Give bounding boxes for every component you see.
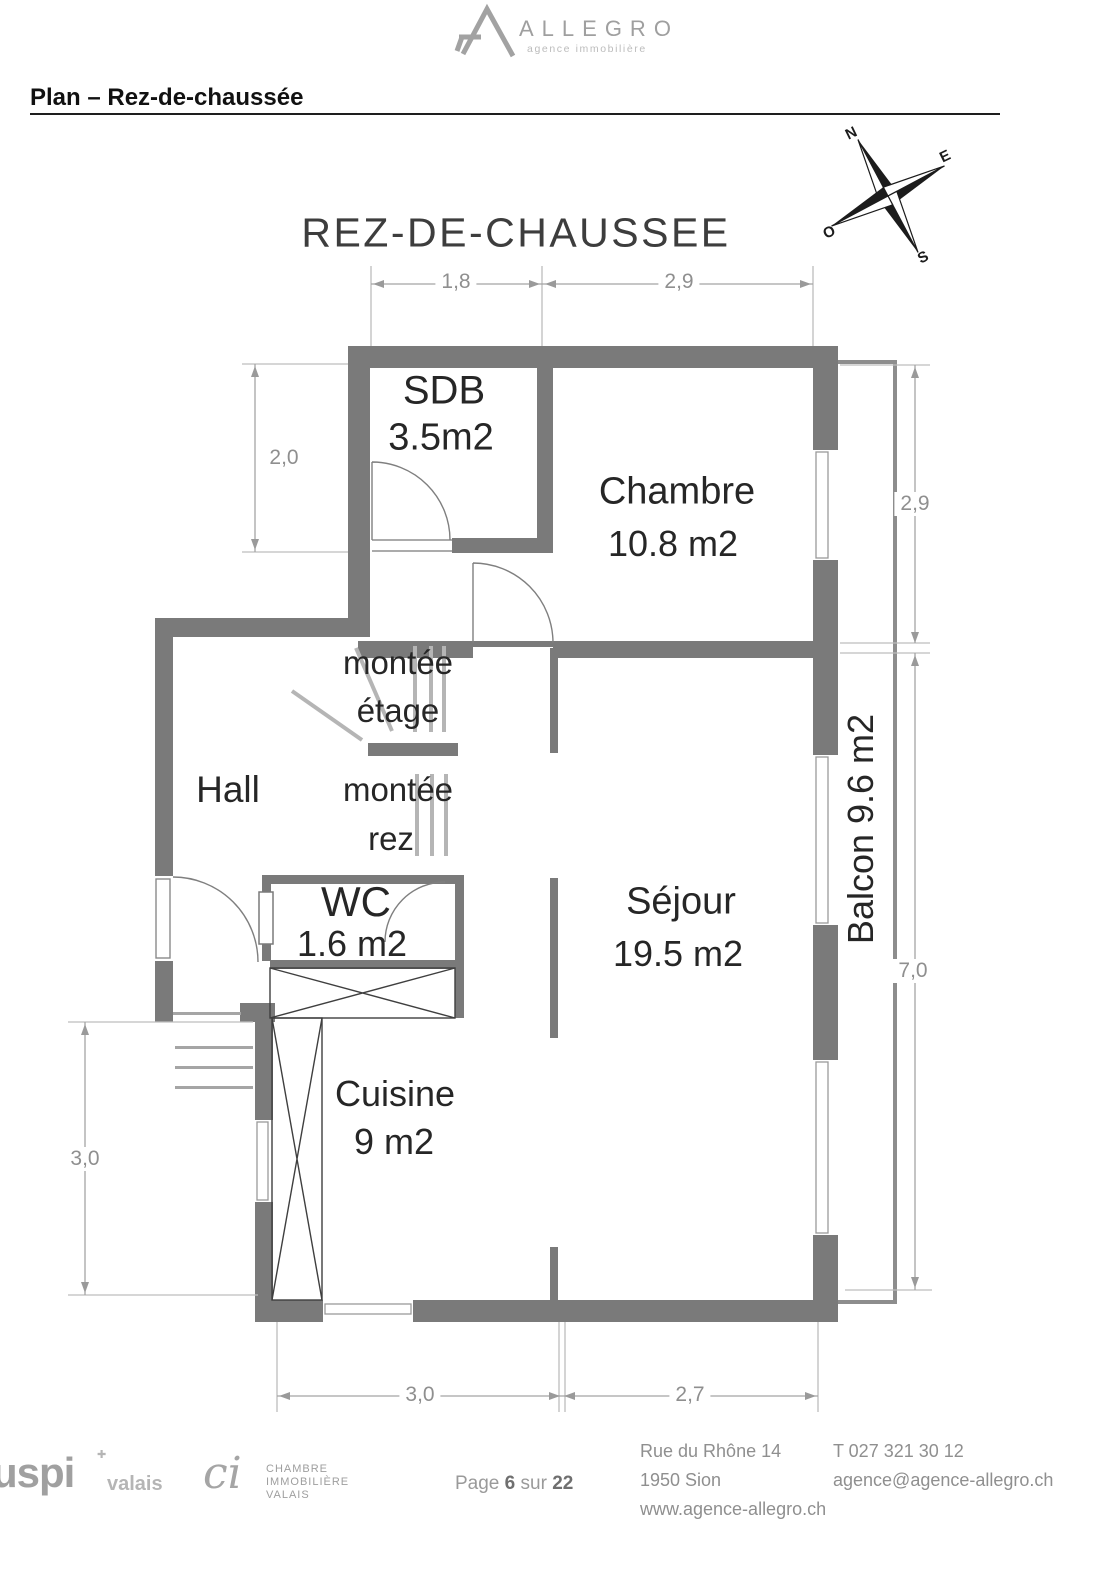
stair-landing-bar <box>368 743 458 756</box>
wall-sdb-divider <box>537 346 553 553</box>
room-balcon-label: Balcon 9.6 m2 <box>840 714 882 944</box>
window-cuisine-south <box>323 1300 413 1322</box>
dimension-lines <box>85 284 915 1396</box>
address-city: 1950 Sion <box>640 1466 826 1495</box>
page-label: Page <box>455 1473 499 1494</box>
page-total: 22 <box>552 1473 573 1494</box>
ci-line-1: CHAMBRE <box>266 1463 349 1476</box>
wall-wc-right <box>455 875 464 1018</box>
dim-right-lower: 7,0 <box>892 959 933 983</box>
dim-left-upper: 2,0 <box>263 446 304 470</box>
document-page: ALLEGRO agence immobilière Plan – Rez-de… <box>0 0 1100 1577</box>
stairs-down-label-2: rez <box>368 820 414 858</box>
wall-hall-left-upper <box>155 637 173 876</box>
page-separator: sur <box>521 1473 547 1494</box>
window-sejour-balcony-door <box>813 755 838 925</box>
room-sejour-area: 19.5 m2 <box>613 933 743 975</box>
window-sejour <box>813 1060 838 1235</box>
entry-steps <box>173 1012 253 1089</box>
sdb-door-sill <box>372 540 452 551</box>
room-chambre-label: Chambre <box>599 471 755 514</box>
wall-wc-left-lower <box>262 943 271 961</box>
page-indicator: Page 6 sur 22 <box>455 1473 573 1495</box>
dim-right-upper: 2,9 <box>894 492 935 516</box>
dim-bottom-left: 3,0 <box>399 1383 440 1407</box>
dim-top-right: 2,9 <box>658 270 699 294</box>
uspi-region-label: valais <box>107 1473 163 1496</box>
wall-sdb-bottom <box>452 538 553 553</box>
entry-door-swing <box>173 877 258 962</box>
sdb-door-swing <box>372 462 450 540</box>
room-sejour-label: Séjour <box>626 881 736 924</box>
uspi-cross-icon: ✚ <box>97 1448 106 1461</box>
wall-wc-left-upper <box>262 875 271 893</box>
contact-email: agence@agence-allegro.ch <box>833 1466 1053 1495</box>
page-number: 6 <box>505 1473 516 1494</box>
wall-top <box>348 346 838 368</box>
compass-north-label: N <box>843 123 860 143</box>
contact-phone: T 027 321 30 12 <box>833 1437 1053 1466</box>
window-chambre <box>813 450 838 560</box>
room-cuisine-area: 9 m2 <box>354 1121 434 1163</box>
dimension-extension-lines <box>68 266 932 1412</box>
dim-left-lower: 3,0 <box>64 1147 105 1171</box>
compass-icon: N E S O <box>801 109 974 282</box>
wall-sejour-divider-1 <box>550 648 558 753</box>
chambre-door-swing <box>473 563 553 643</box>
dimension-arrows <box>81 280 919 1400</box>
wc-door-panel <box>259 892 273 944</box>
stairs-down-label-1: montée <box>343 771 453 809</box>
agency-contact: T 027 321 30 12 agence@agence-allegro.ch <box>833 1437 1053 1495</box>
wall-hall-left-lower <box>155 961 173 1022</box>
wall-right-3 <box>813 925 838 1060</box>
dim-top-left: 1,8 <box>435 270 476 294</box>
room-sdb-label: SDB <box>403 369 485 414</box>
agency-address: Rue du Rhône 14 1950 Sion www.agence-all… <box>640 1437 826 1524</box>
room-wc-area: 1.6 m2 <box>297 923 407 965</box>
address-street: Rue du Rhône 14 <box>640 1437 826 1466</box>
ci-line-3: VALAIS <box>266 1489 349 1502</box>
wall-right-4 <box>813 1235 838 1322</box>
uspi-logo: uspi <box>0 1449 74 1497</box>
wall-hall-top <box>155 618 370 637</box>
plan-title: REZ-DE-CHAUSSEE <box>301 210 730 257</box>
room-chambre-area: 10.8 m2 <box>608 523 738 565</box>
stairs-up-label-2: étage <box>357 692 440 730</box>
wall-cuisine-left-upper <box>255 1003 273 1121</box>
dim-bottom-right: 2,7 <box>669 1383 710 1407</box>
address-website: www.agence-allegro.ch <box>640 1495 826 1524</box>
room-sdb-area: 3.5m2 <box>388 417 494 460</box>
room-wc-label: WC <box>321 878 391 926</box>
window-cuisine-west <box>255 1120 273 1202</box>
wall-right-1 <box>813 346 838 450</box>
chambre-immobiliere-logo-icon: ci <box>203 1448 242 1499</box>
chambre-immobiliere-text: CHAMBRE IMMOBILIÈRE VALAIS <box>266 1463 349 1502</box>
wall-chambre-bottom-right <box>553 641 838 658</box>
compass-south-label: S <box>915 248 931 268</box>
room-hall-label: Hall <box>196 769 260 811</box>
wall-chambre-door-sill <box>473 641 553 647</box>
stairs-up-label-1: montée <box>343 644 453 682</box>
wall-sejour-divider-2 <box>550 878 558 1038</box>
compass-east-label: E <box>937 147 953 167</box>
wall-sejour-divider-3 <box>550 1247 558 1300</box>
room-cuisine-label: Cuisine <box>335 1073 455 1115</box>
wall-sdb-left <box>348 346 370 637</box>
ci-line-2: IMMOBILIÈRE <box>266 1476 349 1489</box>
